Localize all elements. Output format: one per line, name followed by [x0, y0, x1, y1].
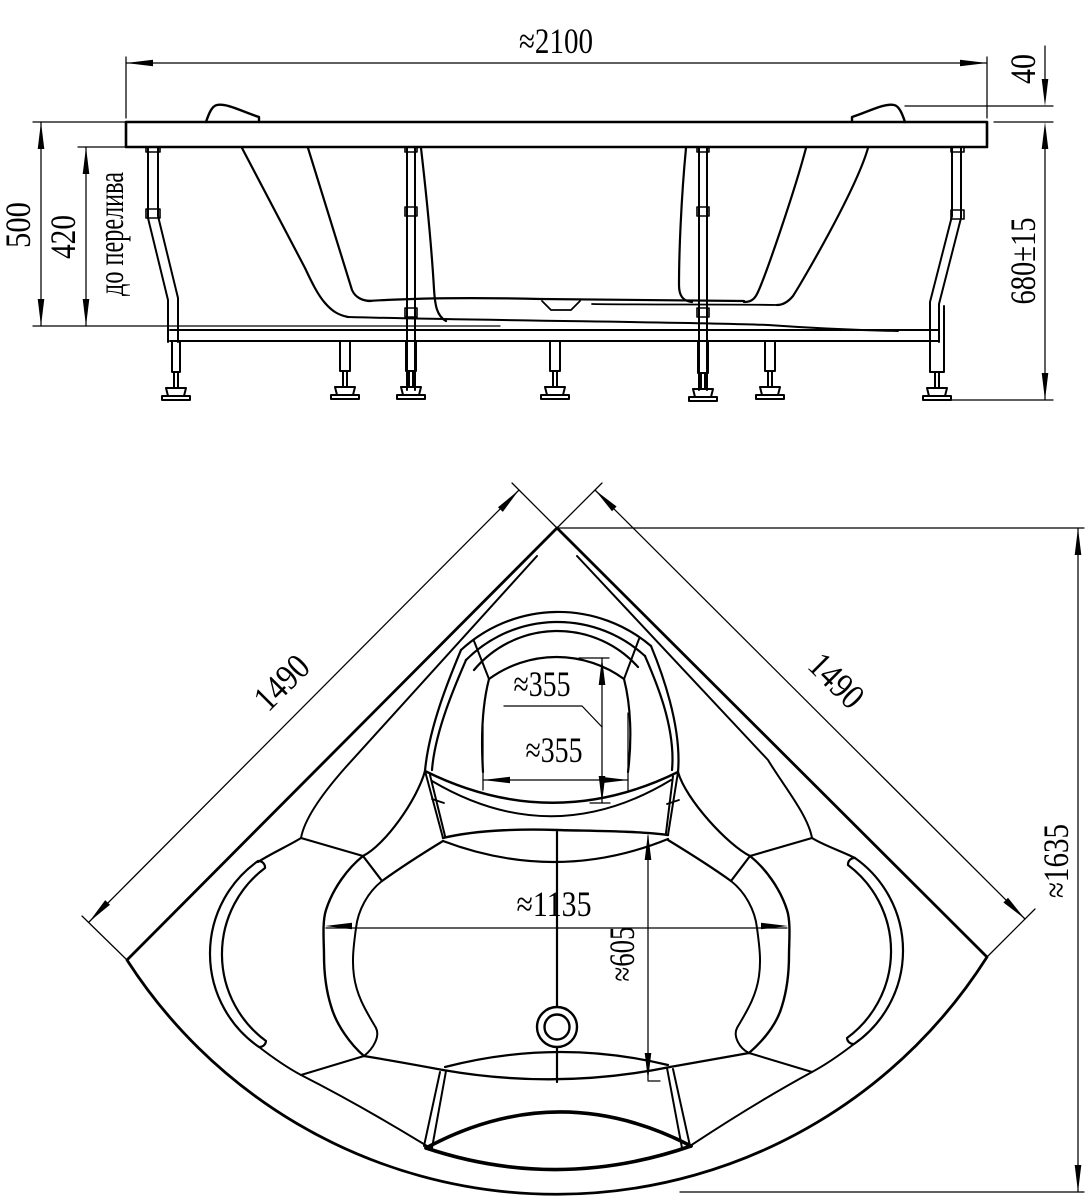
svg-text:≈355: ≈355: [514, 664, 571, 704]
svg-text:40: 40: [1003, 54, 1043, 84]
svg-text:680±15: 680±15: [1003, 218, 1043, 305]
svg-text:≈605: ≈605: [602, 927, 642, 982]
svg-text:≈1635: ≈1635: [1036, 824, 1076, 898]
svg-text:500: 500: [0, 202, 38, 248]
svg-text:1490: 1490: [245, 646, 317, 718]
svg-text:420: 420: [43, 215, 83, 259]
svg-text:≈355: ≈355: [526, 730, 583, 770]
svg-text:до перелива: до перелива: [91, 172, 131, 296]
svg-text:≈2100: ≈2100: [519, 21, 593, 61]
svg-text:≈1135: ≈1135: [517, 884, 592, 924]
